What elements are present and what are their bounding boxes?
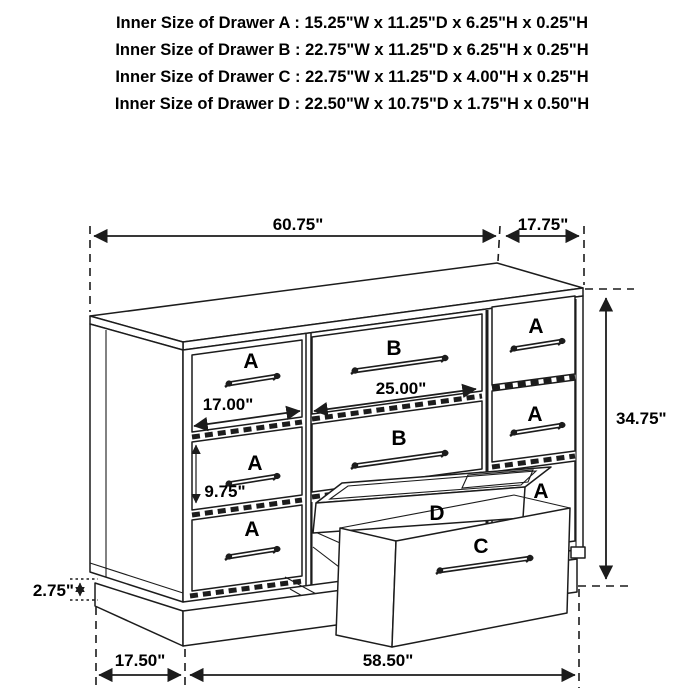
- drawer-label-a-left-row1: A: [243, 350, 258, 373]
- drawer-label-a-right-row1: A: [528, 315, 543, 338]
- spec-line-drawer-a: Inner Size of Drawer A : 15.25"W x 11.25…: [116, 14, 588, 32]
- dim-label-overall-height: 34.75": [616, 409, 667, 428]
- spec-line-drawer-d: Inner Size of Drawer D : 22.50"W x 10.75…: [115, 95, 589, 113]
- left-side-panel: [90, 324, 183, 602]
- dim-label-left-drawer-height: 9.75": [204, 482, 245, 501]
- dim-front-width: 58.50": [190, 651, 575, 675]
- drawer-label-b-row2: B: [391, 427, 406, 450]
- drawer-label-a-left-row3: A: [244, 518, 259, 541]
- drawer-label-a-left-row2: A: [247, 452, 262, 475]
- dim-top-left-width: 60.75": [94, 215, 496, 236]
- dim-label-base-height: 2.75": [33, 581, 74, 600]
- drawer-label-d: D: [429, 502, 444, 525]
- dim-label-side-depth: 17.50": [115, 651, 166, 670]
- furniture-dimension-diagram-page: Inner Size of Drawer A : 15.25"W x 11.25…: [0, 0, 700, 700]
- dim-side-depth: 17.50": [99, 651, 181, 675]
- spec-line-drawer-c: Inner Size of Drawer C : 22.75"W x 11.25…: [115, 68, 588, 86]
- dim-label-middle-drawer-width: 25.00": [376, 379, 427, 398]
- spec-header: Inner Size of Drawer A : 15.25"W x 11.25…: [115, 14, 589, 113]
- dim-top-right-width: 17.75": [506, 215, 579, 236]
- spec-line-drawer-b: Inner Size of Drawer B : 22.75"W x 11.25…: [115, 41, 588, 59]
- dim-label-left-drawer-width: 17.00": [203, 395, 254, 414]
- dim-base-height: 2.75": [33, 581, 80, 600]
- dim-label-top-right-width: 17.75": [518, 215, 569, 234]
- dresser-dimension-diagram: Inner Size of Drawer A : 15.25"W x 11.25…: [0, 0, 700, 700]
- dim-overall-height: 34.75": [606, 298, 667, 579]
- drawer-label-b-row1: B: [386, 337, 401, 360]
- plinth-right-foot: [571, 547, 585, 558]
- dim-label-top-left-width: 60.75": [273, 215, 324, 234]
- drawer-label-c: C: [473, 535, 488, 558]
- ext-line-top-mid: [498, 226, 500, 261]
- drawer-label-a-right-row3: A: [533, 480, 548, 503]
- dim-label-front-width: 58.50": [363, 651, 414, 670]
- drawer-c-side-wall: [336, 528, 396, 647]
- drawer-label-a-right-row2: A: [527, 403, 542, 426]
